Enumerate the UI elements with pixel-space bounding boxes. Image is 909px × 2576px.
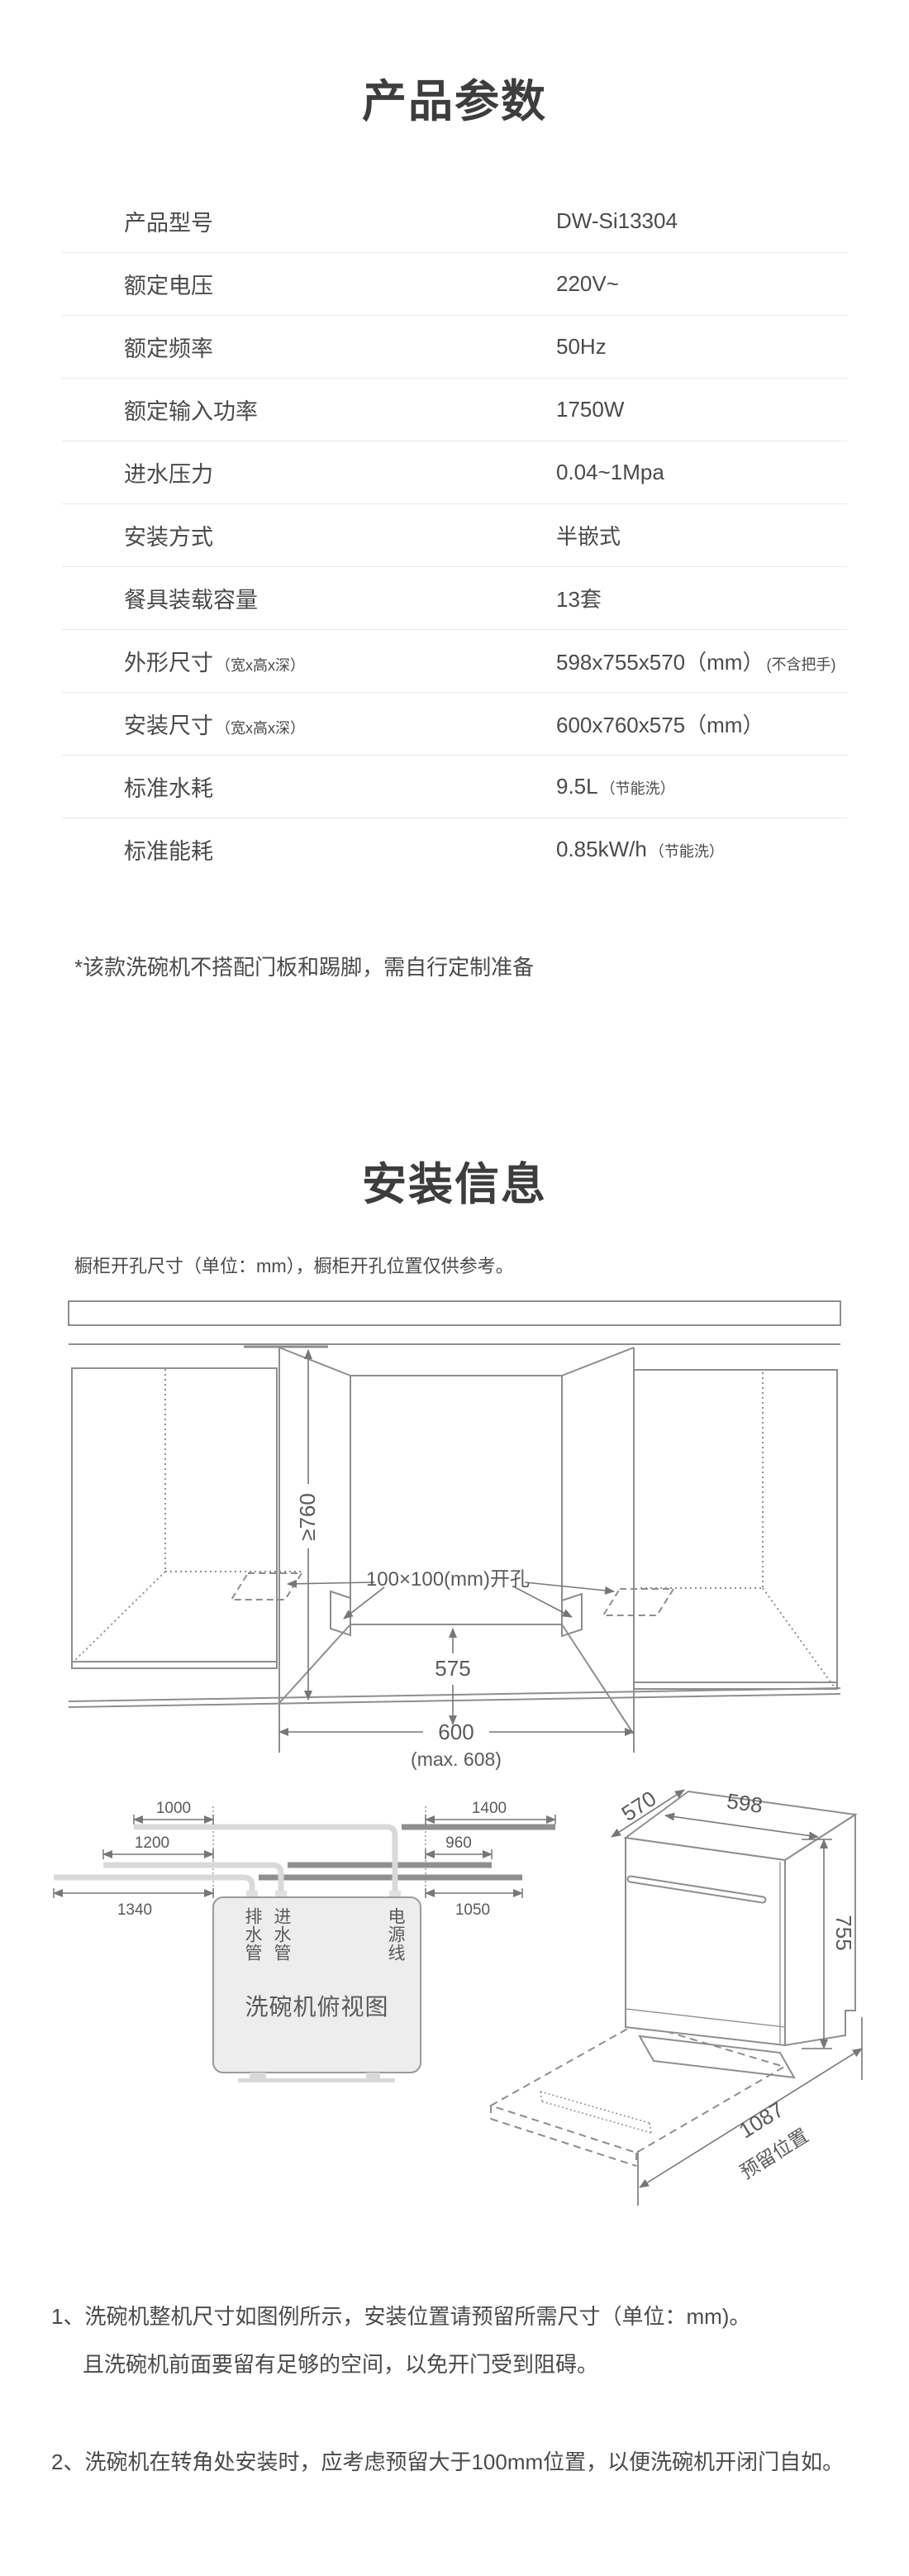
dim-1400-label: 1400 [472, 1800, 507, 1817]
dishwasher-3d-view [491, 1791, 855, 2166]
dim-598-label: 598 [726, 1788, 764, 1818]
inlet-hose-label: 进水管 [272, 1907, 290, 1962]
table-row: 额定电压 220V~ [62, 253, 847, 316]
spec-value: DW-Si13304 [556, 208, 678, 233]
install-subtitle: 橱柜开孔尺寸（单位：mm），橱柜开孔位置仅供参考。 [74, 1252, 514, 1278]
page-title-install: 安装信息 [0, 1147, 909, 1213]
spec-label-note: （宽x高x深） [216, 720, 305, 737]
spec-label: 安装方式 [124, 525, 213, 550]
page-title-params: 产品参数 [0, 64, 909, 130]
spec-label: 额定电压 [124, 274, 213, 298]
table-row: 餐具装载容量 13套 [62, 567, 847, 630]
spec-value: 0.85kW/h [556, 837, 647, 861]
dim-960-label: 960 [445, 1834, 472, 1852]
countertop [69, 1301, 840, 1344]
install-note-2: 2、洗碗机在转角处安装时，应考虑预留大于100mm位置，以便洗碗机开闭门自如。 [51, 2445, 844, 2476]
spec-footnote: *该款洗碗机不搭配门板和踢脚，需自行定制准备 [74, 951, 534, 981]
spec-label: 额定输入功率 [124, 399, 258, 424]
table-row: 额定频率 50Hz [62, 316, 847, 379]
spec-table: 产品型号 DW-Si13304 额定电压 220V~ 额定频率 50Hz 额定输… [62, 190, 847, 880]
spec-label: 外形尺寸 [124, 651, 213, 675]
topview-caption: 洗碗机俯视图 [213, 1989, 421, 2022]
table-row: 安装方式 半嵌式 [62, 504, 847, 567]
spec-value: 220V~ [556, 271, 619, 296]
table-row: 安装尺寸（宽x高x深） 600x760x575（mm） [62, 693, 847, 756]
spec-value: 9.5L [556, 774, 598, 799]
dim-1050-label: 1050 [455, 1901, 490, 1919]
door-open-footprint [491, 2023, 784, 2166]
install-note-1b: 且洗碗机前面要留有足够的空间，以免开门受到阻碍。 [83, 2348, 598, 2378]
dim-width-max-label: (max. 608) [411, 1748, 502, 1770]
table-row: 额定输入功率 1750W [62, 379, 847, 441]
spec-value-note: （节能洗） [601, 780, 675, 797]
spec-label: 额定频率 [124, 336, 213, 361]
dim-1340-label: 1340 [117, 1901, 152, 1919]
hose-topview-and-machine-diagram: 1000 1200 1340 1400 960 1050 [45, 1786, 880, 2232]
spec-value: 半嵌式 [556, 524, 621, 549]
floor-line [69, 1688, 840, 1707]
spec-label: 餐具装载容量 [124, 588, 258, 613]
left-cabinet [72, 1368, 302, 1668]
product-detail-page: 产品参数 产品型号 DW-Si13304 额定电压 220V~ 额定频率 50H… [0, 0, 909, 2576]
table-row: 进水压力 0.04~1Mpa [62, 441, 847, 504]
table-row: 标准能耗 0.85kW/h（节能洗） [62, 818, 847, 880]
dim-1000-label: 1000 [156, 1800, 191, 1817]
spec-label: 进水压力 [124, 462, 213, 487]
cabinet-cutout-diagram: ≥760 100×100(mm)开孔 575 600 (max. 608) [62, 1298, 847, 1782]
hoses [54, 1827, 555, 1894]
spec-value: 0.04~1Mpa [556, 460, 664, 484]
spec-value: 598x755x570（mm） [556, 650, 764, 675]
right-cabinet [603, 1370, 837, 1689]
spec-label: 安装尺寸 [124, 713, 213, 738]
dim-1087-label: 1087 [735, 2097, 788, 2143]
spec-label: 标准水耗 [124, 776, 213, 801]
spec-value: 1750W [556, 397, 624, 422]
spec-value: 50Hz [556, 334, 607, 359]
dim-depth-label: 575 [435, 1656, 470, 1681]
spec-label-note: （宽x高x深） [216, 657, 305, 674]
dim-755-label: 755 [831, 1915, 856, 1950]
hole-cutout-label: 100×100(mm)开孔 [366, 1568, 530, 1591]
spec-label: 产品型号 [124, 211, 213, 236]
dim-width-label: 600 [438, 1720, 474, 1744]
table-row: 标准水耗 9.5L（节能洗） [62, 756, 847, 818]
install-note-1: 1、洗碗机整机尺寸如图例所示，安装位置请预留所需尺寸（单位：mm)。 [51, 2300, 750, 2330]
spec-value-note: （节能洗） [650, 843, 724, 860]
table-row: 外形尺寸（宽x高x深） 598x755x570（mm）(不含把手) [62, 630, 847, 693]
spec-value-note: (不含把手) [766, 656, 835, 673]
spec-value: 13套 [556, 587, 602, 612]
dim-1200-label: 1200 [135, 1834, 169, 1852]
spec-label: 标准能耗 [124, 839, 213, 864]
power-cord-label: 电源线 [386, 1907, 404, 1962]
dim-height-label: ≥760 [295, 1493, 320, 1541]
niche-opening [244, 1347, 634, 1753]
table-row: 产品型号 DW-Si13304 [62, 190, 847, 253]
drain-hose-label: 排水管 [243, 1907, 261, 1962]
spec-value: 600x760x575（mm） [556, 713, 764, 737]
